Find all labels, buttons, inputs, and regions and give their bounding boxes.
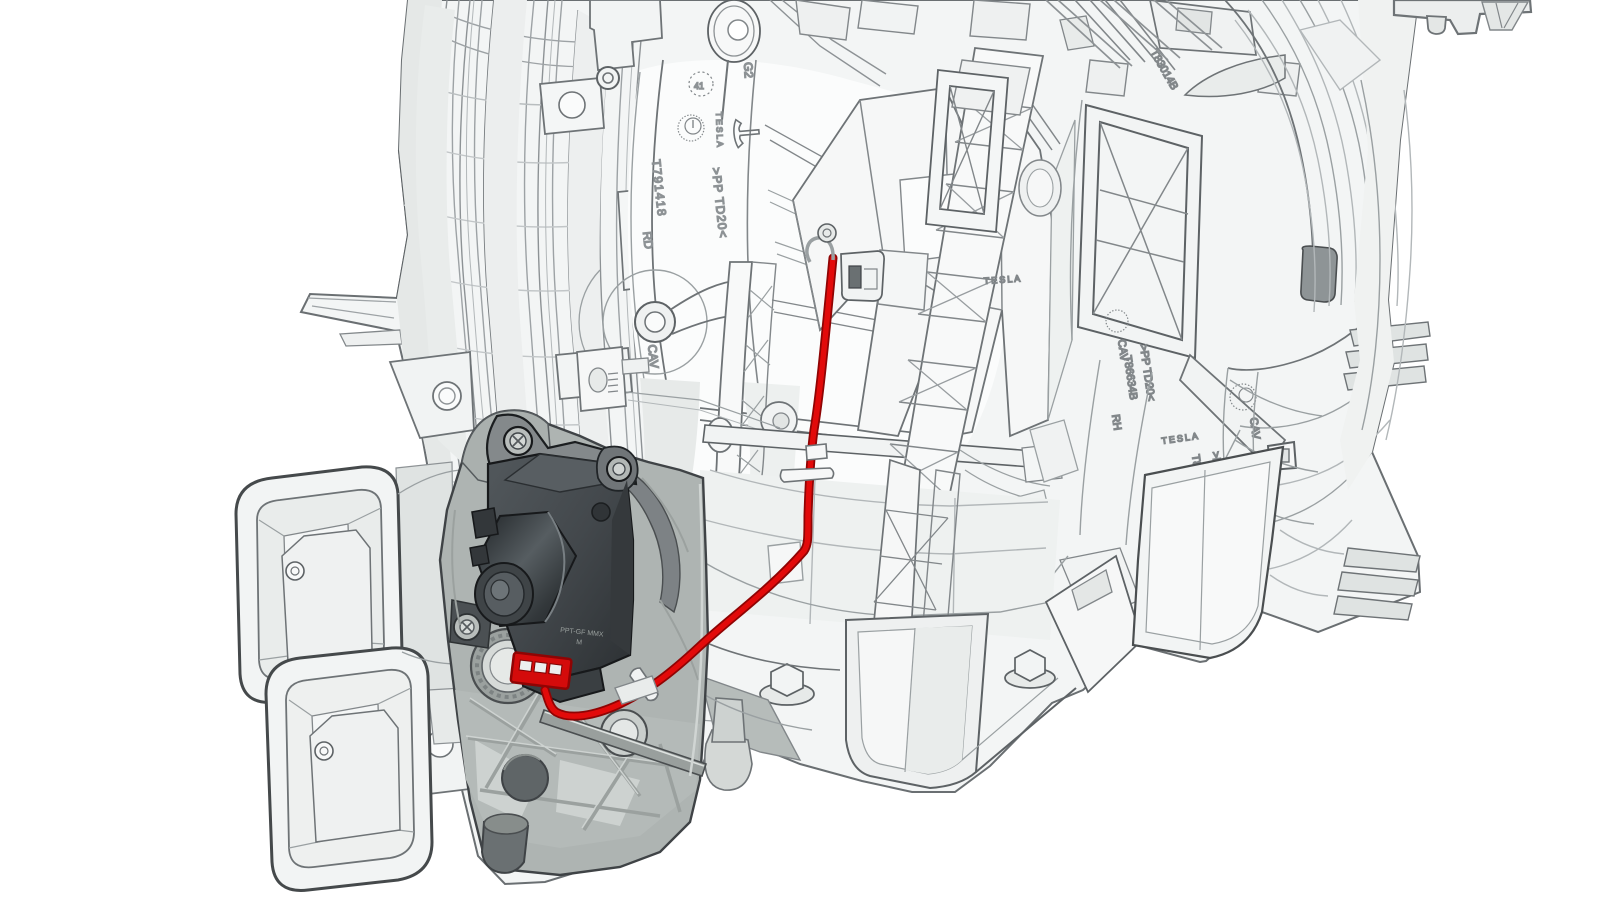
svg-text:RH: RH [1109, 414, 1123, 431]
svg-text:TESLA: TESLA [714, 112, 725, 149]
svg-text:G2: G2 [741, 62, 756, 79]
svg-text:M: M [576, 639, 583, 647]
svg-text:41: 41 [694, 81, 704, 91]
svg-text:RD: RD [640, 231, 656, 250]
